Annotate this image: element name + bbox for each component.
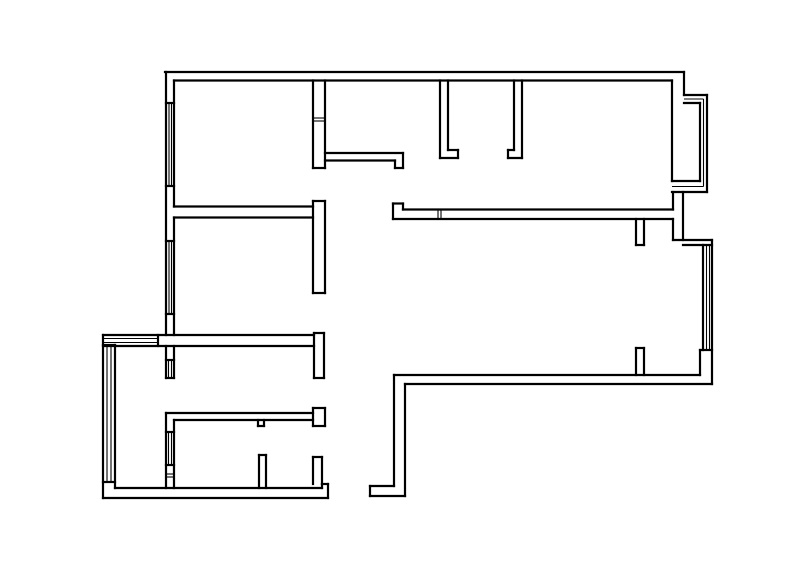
floor-plan-canvas [0, 0, 800, 563]
walls-layer [103, 72, 712, 498]
window-glazing-layer [103, 99, 710, 482]
floor-plan-page [0, 0, 800, 563]
